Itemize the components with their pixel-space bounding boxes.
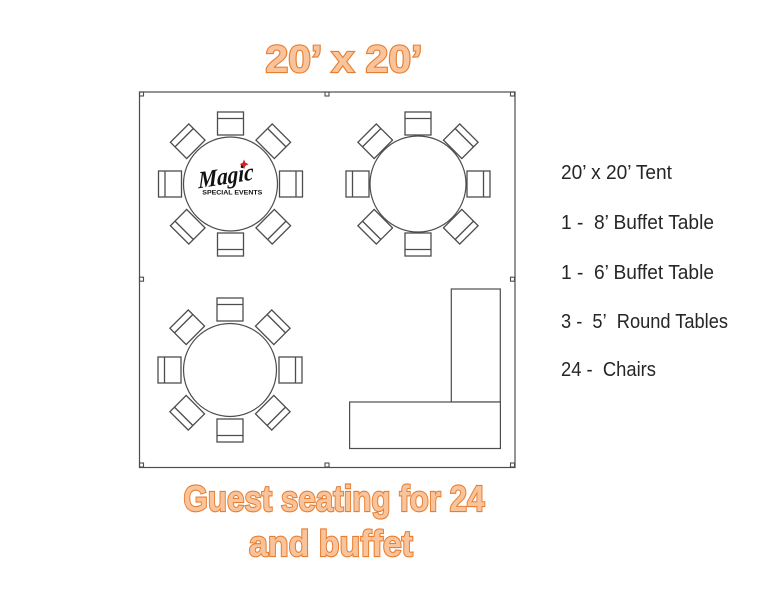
svg-text:SPECIAL EVENTS: SPECIAL EVENTS xyxy=(202,190,262,197)
svg-text:1 - 8’ Buffet Table: 1 - 8’ Buffet Table xyxy=(561,212,714,234)
svg-text:1 - 6’ Buffet Table: 1 - 6’ Buffet Table xyxy=(561,262,714,284)
svg-text:and buffet: and buffet xyxy=(249,523,413,564)
svg-text:20’ x 20’ Tent: 20’ x 20’ Tent xyxy=(561,162,672,184)
svg-text:Guest seating for 24: Guest seating for 24 xyxy=(184,478,485,519)
svg-text:24 - Chairs: 24 - Chairs xyxy=(561,359,656,381)
svg-text:20’ x 20’: 20’ x 20’ xyxy=(266,39,423,81)
svg-text:3 - 5’ Round Tables: 3 - 5’ Round Tables xyxy=(561,311,728,333)
